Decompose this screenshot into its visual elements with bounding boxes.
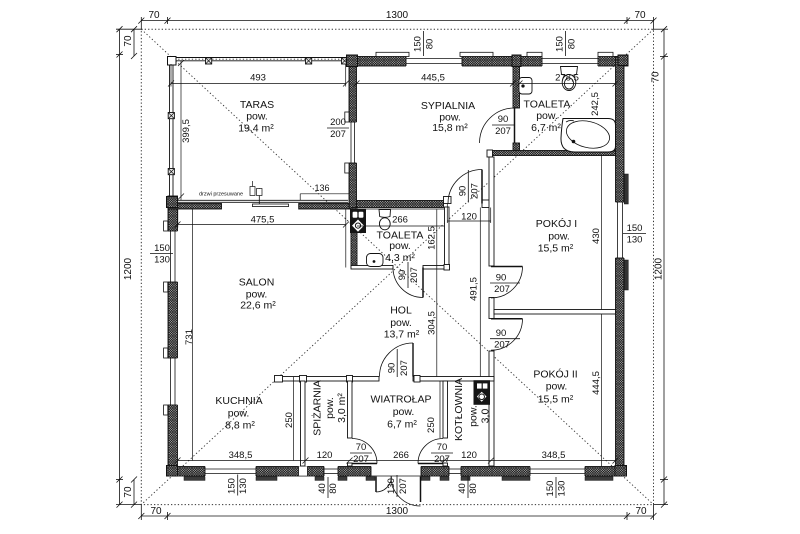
svg-text:430: 430 [591, 228, 602, 244]
svg-text:348,5: 348,5 [229, 450, 253, 461]
svg-text:207: 207 [495, 126, 511, 137]
svg-text:266: 266 [393, 450, 409, 461]
svg-text:1200: 1200 [123, 257, 134, 280]
svg-text:90: 90 [496, 273, 507, 284]
svg-text:207: 207 [330, 129, 346, 140]
svg-text:6,7 m²: 6,7 m² [531, 122, 561, 134]
svg-text:70: 70 [123, 486, 134, 498]
svg-text:444,5: 444,5 [591, 371, 602, 395]
svg-text:266: 266 [392, 215, 408, 226]
svg-text:pow.: pow. [390, 317, 412, 329]
svg-text:250: 250 [426, 417, 437, 433]
svg-text:90: 90 [397, 270, 408, 281]
svg-text:POKÓJ I: POKÓJ I [536, 217, 577, 230]
svg-text:70: 70 [123, 35, 134, 47]
svg-text:445,5: 445,5 [421, 73, 445, 84]
svg-text:15,8 m²: 15,8 m² [432, 122, 468, 134]
svg-text:150: 150 [154, 243, 170, 254]
svg-text:207: 207 [470, 183, 481, 199]
svg-text:1300: 1300 [386, 506, 409, 517]
svg-text:207: 207 [399, 360, 410, 376]
svg-text:80: 80 [567, 39, 578, 50]
svg-text:200: 200 [330, 117, 346, 128]
svg-text:130: 130 [154, 255, 170, 266]
svg-text:493: 493 [250, 73, 266, 84]
svg-text:70: 70 [148, 10, 160, 21]
svg-text:120: 120 [461, 450, 477, 461]
svg-text:150: 150 [413, 36, 424, 52]
svg-text:6,7 m²: 6,7 m² [387, 419, 417, 431]
svg-text:3,0 m²: 3,0 m² [336, 393, 348, 423]
svg-text:70: 70 [437, 442, 448, 453]
svg-text:90: 90 [387, 363, 398, 374]
svg-text:348,5: 348,5 [542, 450, 566, 461]
svg-text:pow.: pow. [393, 406, 415, 418]
svg-text:pow.: pow. [536, 110, 558, 122]
svg-text:150: 150 [627, 223, 643, 234]
svg-text:KUCHNIA: KUCHNIA [215, 395, 262, 407]
svg-text:40: 40 [317, 483, 328, 494]
svg-text:250: 250 [284, 412, 295, 428]
svg-text:80: 80 [468, 483, 479, 494]
svg-text:pow.: pow. [246, 288, 268, 300]
svg-text:4,3 m²: 4,3 m² [385, 252, 415, 264]
svg-text:120: 120 [461, 212, 477, 223]
svg-text:KOTŁOWNIA: KOTŁOWNIA [453, 378, 465, 441]
svg-text:207: 207 [409, 267, 420, 283]
svg-text:136: 136 [314, 183, 329, 193]
svg-text:304,5: 304,5 [427, 311, 438, 335]
svg-text:SYPIALNIA: SYPIALNIA [421, 100, 475, 112]
svg-text:207: 207 [434, 454, 450, 465]
svg-text:WIATROŁAP: WIATROŁAP [370, 394, 431, 406]
svg-text:pow.: pow. [468, 405, 480, 427]
svg-text:pow.: pow. [389, 240, 411, 252]
svg-text:drzwi przesuwane: drzwi przesuwane [199, 192, 243, 198]
svg-text:70: 70 [635, 506, 647, 517]
svg-text:207: 207 [494, 340, 510, 351]
svg-text:70: 70 [651, 71, 662, 83]
svg-text:399,5: 399,5 [181, 119, 192, 143]
svg-text:pow.: pow. [546, 381, 568, 393]
svg-text:15,5 m²: 15,5 m² [538, 243, 574, 255]
svg-text:3,0: 3,0 [480, 409, 492, 424]
svg-text:70: 70 [634, 10, 646, 21]
svg-text:90: 90 [498, 114, 509, 125]
svg-text:130: 130 [386, 478, 397, 494]
svg-text:150: 150 [545, 481, 556, 497]
svg-text:70: 70 [150, 506, 162, 517]
svg-text:162,5: 162,5 [427, 226, 438, 250]
svg-text:207: 207 [353, 454, 369, 465]
svg-text:130: 130 [557, 481, 568, 497]
svg-text:130: 130 [238, 478, 249, 494]
svg-text:pow.: pow. [246, 111, 268, 123]
svg-text:19,4 m²: 19,4 m² [238, 123, 274, 135]
svg-text:1200: 1200 [654, 257, 665, 280]
svg-text:90: 90 [458, 186, 469, 197]
svg-text:pow.: pow. [228, 408, 250, 420]
svg-text:242,5: 242,5 [590, 92, 601, 116]
svg-text:207: 207 [398, 478, 409, 494]
svg-text:22,6 m²: 22,6 m² [240, 300, 276, 312]
svg-text:15,5 m²: 15,5 m² [538, 394, 574, 406]
svg-text:475,5: 475,5 [251, 215, 275, 226]
svg-text:491,5: 491,5 [469, 277, 480, 301]
svg-text:8,8 m²: 8,8 m² [225, 420, 255, 432]
svg-text:90: 90 [496, 328, 507, 339]
svg-text:70: 70 [356, 442, 367, 453]
svg-text:TOALETA: TOALETA [524, 99, 571, 111]
svg-text:pow.: pow. [324, 397, 336, 419]
svg-text:150: 150 [555, 36, 566, 52]
svg-text:pow.: pow. [548, 231, 570, 243]
svg-text:SALON: SALON [239, 277, 275, 289]
svg-text:HOL: HOL [390, 305, 412, 317]
svg-text:150: 150 [227, 478, 238, 494]
svg-text:120: 120 [317, 450, 333, 461]
svg-text:80: 80 [425, 39, 436, 50]
svg-text:207: 207 [494, 284, 510, 295]
svg-text:40: 40 [457, 483, 468, 494]
svg-text:POKÓJ II: POKÓJ II [533, 368, 577, 381]
svg-text:13,7 m²: 13,7 m² [384, 329, 420, 341]
svg-text:SPIŻARNIA: SPIŻARNIA [311, 380, 324, 435]
svg-text:TARAS: TARAS [240, 99, 274, 111]
svg-text:278,5: 278,5 [555, 73, 579, 84]
svg-text:731: 731 [184, 329, 195, 345]
svg-text:1300: 1300 [386, 10, 409, 21]
svg-text:80: 80 [328, 483, 339, 494]
svg-text:130: 130 [627, 235, 643, 246]
